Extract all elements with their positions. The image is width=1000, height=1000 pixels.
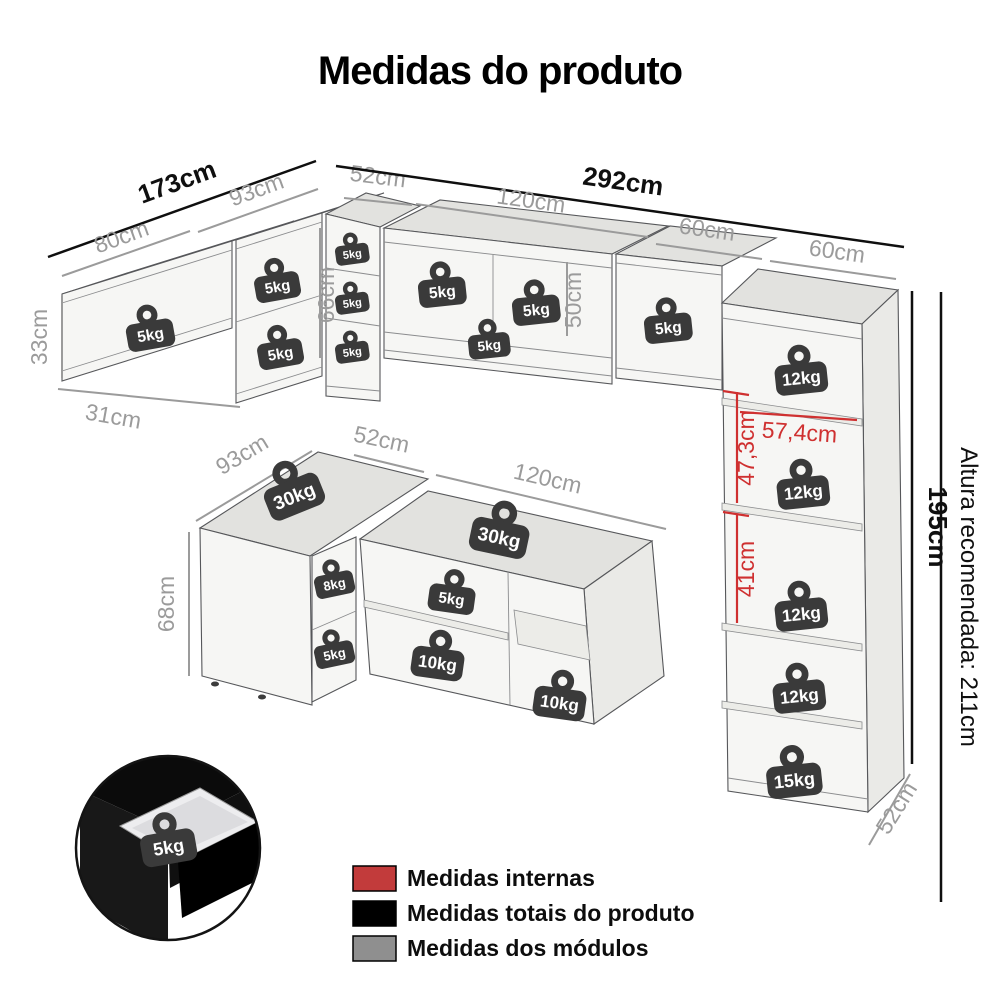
dim-label-left-height: 33cm xyxy=(26,309,52,365)
legend-swatch-modules xyxy=(353,936,396,961)
legend-swatch-internal xyxy=(353,866,396,891)
svg-text:5kg: 5kg xyxy=(522,301,550,321)
dim-label-tall-height: 195cm xyxy=(923,487,953,568)
diagram-canvas: Medidas do produto xyxy=(0,0,1000,1000)
internal-dim-label-width: 57,4cm xyxy=(761,416,838,447)
legend-item-internal: Medidas internas xyxy=(353,865,595,891)
svg-text:5kg: 5kg xyxy=(654,319,682,339)
page-title: Medidas do produto xyxy=(318,49,682,93)
svg-text:12kg: 12kg xyxy=(781,367,822,390)
product-measurements-diagram: Medidas do produto xyxy=(0,0,1000,1000)
svg-text:5kg: 5kg xyxy=(428,283,456,303)
legend-label-total: Medidas totais do produto xyxy=(407,900,695,926)
recommended-height-label: Altura recomendada: 211cm xyxy=(955,447,982,747)
dim-label-corner-height: 66cm xyxy=(313,267,339,323)
svg-text:15kg: 15kg xyxy=(773,768,816,792)
legend-label-internal: Medidas internas xyxy=(407,865,595,891)
dim-label-lower-height: 68cm xyxy=(153,576,179,632)
svg-text:5kg: 5kg xyxy=(477,337,502,354)
svg-text:12kg: 12kg xyxy=(783,481,824,504)
legend-swatch-total xyxy=(353,901,396,926)
svg-text:12kg: 12kg xyxy=(781,603,822,626)
internal-dim-label-lower-height: 41cm xyxy=(733,541,759,597)
dim-label-center-height: 50cm xyxy=(560,272,586,328)
svg-text:5kg: 5kg xyxy=(437,589,465,609)
legend-label-modules: Medidas dos módulos xyxy=(407,935,649,961)
svg-text:12kg: 12kg xyxy=(779,685,820,708)
internal-dim-label-upper-height: 47,3cm xyxy=(733,410,759,485)
